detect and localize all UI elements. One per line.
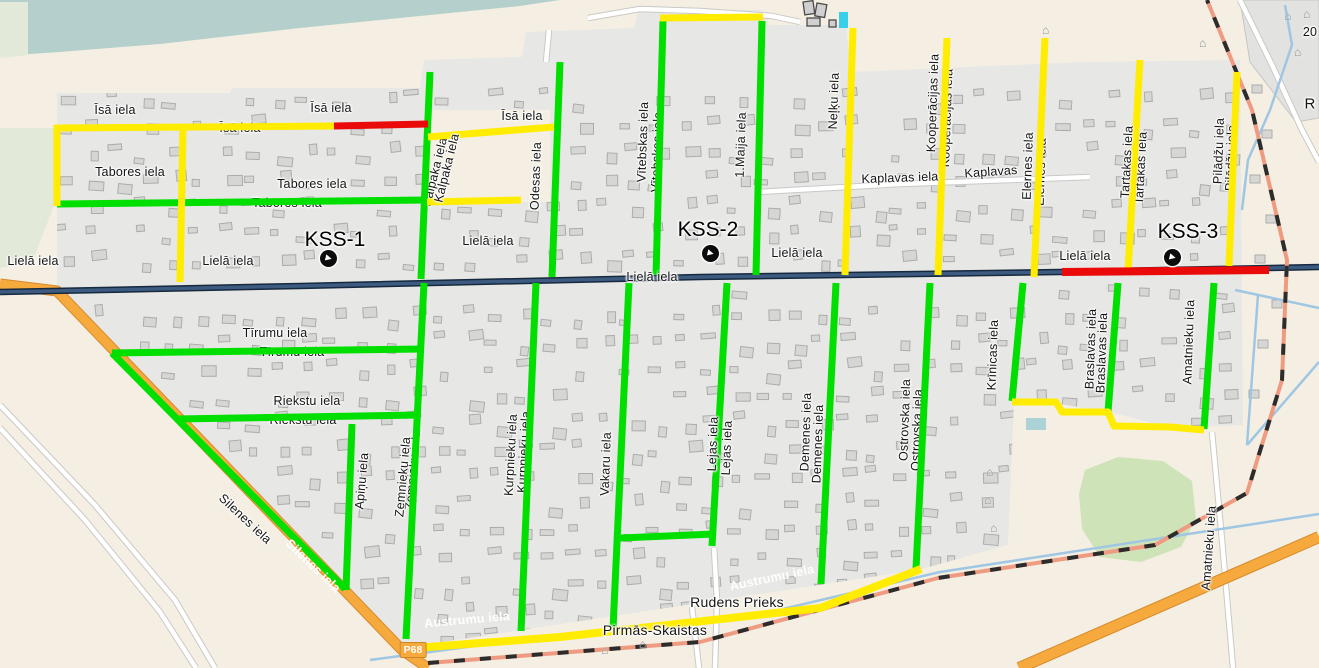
street-label: Odesas iela [529,142,544,211]
street-label: 20 [1303,26,1317,39]
street-label: Lielā iela [202,255,253,268]
street-label: Amatnieku iela [1200,505,1218,590]
street-label: Silenes iela [283,537,342,595]
kss-station-icon[interactable]: ▶ [702,245,719,262]
street-label: Vītebskas iela [635,101,650,182]
street-label: Tabores iela [277,178,347,191]
street-label: Braslavas iela [1083,308,1098,389]
play-icon: ▶ [707,248,715,257]
street-label: Vakaru iela [599,432,614,496]
street-label: Neļķu iela [827,72,841,129]
kss-station-icon[interactable]: ▶ [1164,249,1181,266]
street-label: Lielā iela [626,271,677,284]
play-icon: ▶ [1169,252,1177,261]
street-label: Lielā iela [462,235,513,248]
street-label: Lielā iela [1059,250,1110,263]
street-label: Kaplavas [964,164,1018,180]
street-label: Krīnicas iela [986,319,1001,390]
kss-station-icon[interactable]: ▶ [320,250,337,267]
map-canvas[interactable]: Īsā ielaTabores ielaTīrumu ielaRiekstu i… [0,0,1319,668]
kss-station-label: KSS-2 [678,218,739,242]
street-label: 1.Maija iela [734,112,749,178]
street-label: Kalpaka iela [432,132,461,203]
label-layer: Īsā ielaĪsā ielaĪsā ielaTabores ielaTabo… [0,0,1319,668]
street-label: Kooperācijas iela [925,54,941,153]
street-label: Amatnieku iela [1181,299,1196,384]
street-label: Austrumu iela [424,610,511,630]
street-label: Silenes iela [216,492,273,546]
street-label: Īsā iela [94,104,135,117]
street-label: Rudens Prieks [690,595,784,609]
street-label: Lielā iela [771,247,822,260]
street-label: R [1304,97,1315,112]
street-label: Kurpnieku iela [503,414,520,497]
kss-station-label: KSS-1 [305,228,366,252]
street-label: Zemnieku iela [393,436,412,517]
play-icon: ▶ [325,253,333,262]
street-label: Apiņu iela [353,452,370,510]
street-label: Elernes iela [1021,132,1036,200]
road-ref-badge: P68 [400,642,427,658]
kss-station-label: KSS-3 [1158,220,1219,244]
street-label: Austrumu iela [729,563,816,593]
street-label: Īsā iela [310,102,351,115]
street-label: Lielā iela [7,255,58,268]
street-label: Tartakas iela [1119,125,1135,198]
street-label: Pilādžu iela [1212,118,1227,185]
street-label: Tabores iela [95,166,165,179]
street-label: Demenes iela [798,392,813,471]
street-label: Riekstu iela [273,395,340,408]
street-label: Tīrumu iela [243,327,308,340]
street-label: Ostrovska iela [897,379,912,461]
street-label: Kaplavas iela [861,170,938,185]
street-label: Pirmās-Skaistas [603,623,707,637]
street-label: Īsā iela [501,110,542,123]
street-label: Lejas iela [706,416,720,471]
